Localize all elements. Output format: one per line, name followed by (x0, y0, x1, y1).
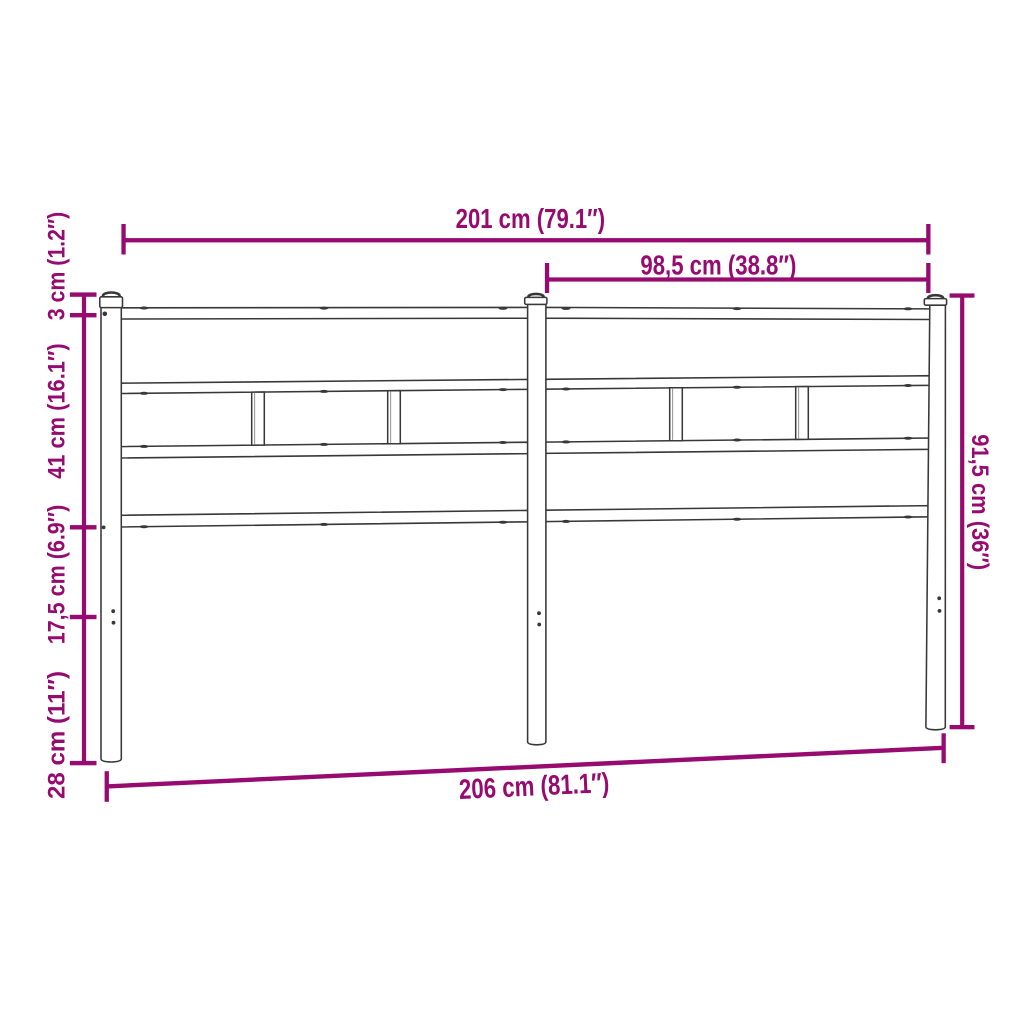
svg-text:201 cm (79.1″): 201 cm (79.1″) (456, 203, 606, 234)
svg-text:41 cm (16.1″): 41 cm (16.1″) (44, 343, 71, 479)
svg-text:3 cm (1.2″): 3 cm (1.2″) (44, 212, 71, 321)
svg-text:91,5 cm (36″): 91,5 cm (36″) (966, 434, 993, 570)
svg-text:17,5 cm (6.9″): 17,5 cm (6.9″) (44, 505, 71, 645)
svg-text:28 cm (11″): 28 cm (11″) (44, 671, 71, 799)
svg-text:98,5 cm (38.8″): 98,5 cm (38.8″) (640, 249, 796, 280)
